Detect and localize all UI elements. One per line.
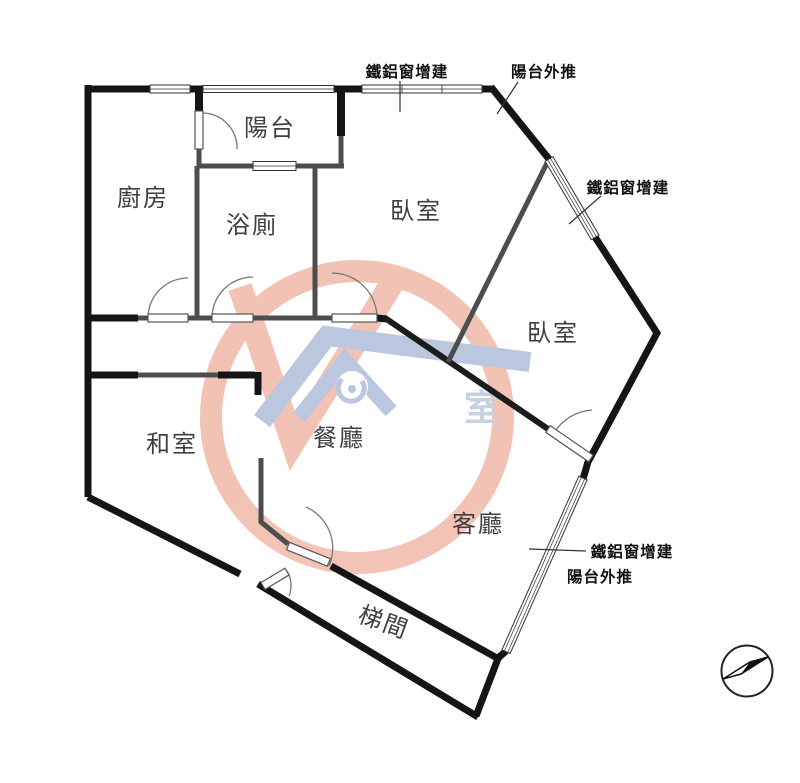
room-label-balcony: 陽台 xyxy=(244,115,296,142)
room-label-bedroom-1: 臥室 xyxy=(390,198,442,225)
kitchen-door xyxy=(148,278,188,322)
annotation-bottom-window: 鐵鋁窗增建 xyxy=(591,542,674,561)
balcony-top-window xyxy=(203,86,334,93)
bedroom2-diagonal-window xyxy=(545,157,599,240)
annotation-right-window: 鐵鋁窗增建 xyxy=(587,178,670,197)
annotation-top-balcony-pushout: 陽台外推 xyxy=(511,62,577,81)
room-label-tatami: 和室 xyxy=(146,431,198,458)
bedroom2-door xyxy=(546,410,593,462)
floor-plan-page: 室 xyxy=(0,0,800,783)
leader-bottom-window xyxy=(529,549,586,551)
room-label-living: 客廳 xyxy=(452,511,504,538)
living-room-diagonal-window xyxy=(502,476,587,653)
bedroom1-top-window xyxy=(362,85,482,93)
north-arrow-icon xyxy=(722,646,773,697)
annotation-bottom-balcony-pushout: 陽台外推 xyxy=(567,567,633,586)
annotation-labels: 鐵鋁窗增建 陽台外推 鐵鋁窗增建 鐵鋁窗增建 陽台外推 xyxy=(366,62,674,586)
room-label-kitchen: 廚房 xyxy=(117,185,169,212)
balcony-door xyxy=(195,111,237,149)
room-label-bathroom: 浴廁 xyxy=(226,212,278,239)
kitchen-window xyxy=(150,85,190,93)
annotation-top-window: 鐵鋁窗增建 xyxy=(366,62,449,81)
room-label-dining: 餐廳 xyxy=(313,425,365,452)
floor-plan-drawing: 室 xyxy=(0,0,800,783)
bathroom-balcony-window xyxy=(253,162,296,171)
room-label-bedroom-2: 臥室 xyxy=(527,320,579,347)
